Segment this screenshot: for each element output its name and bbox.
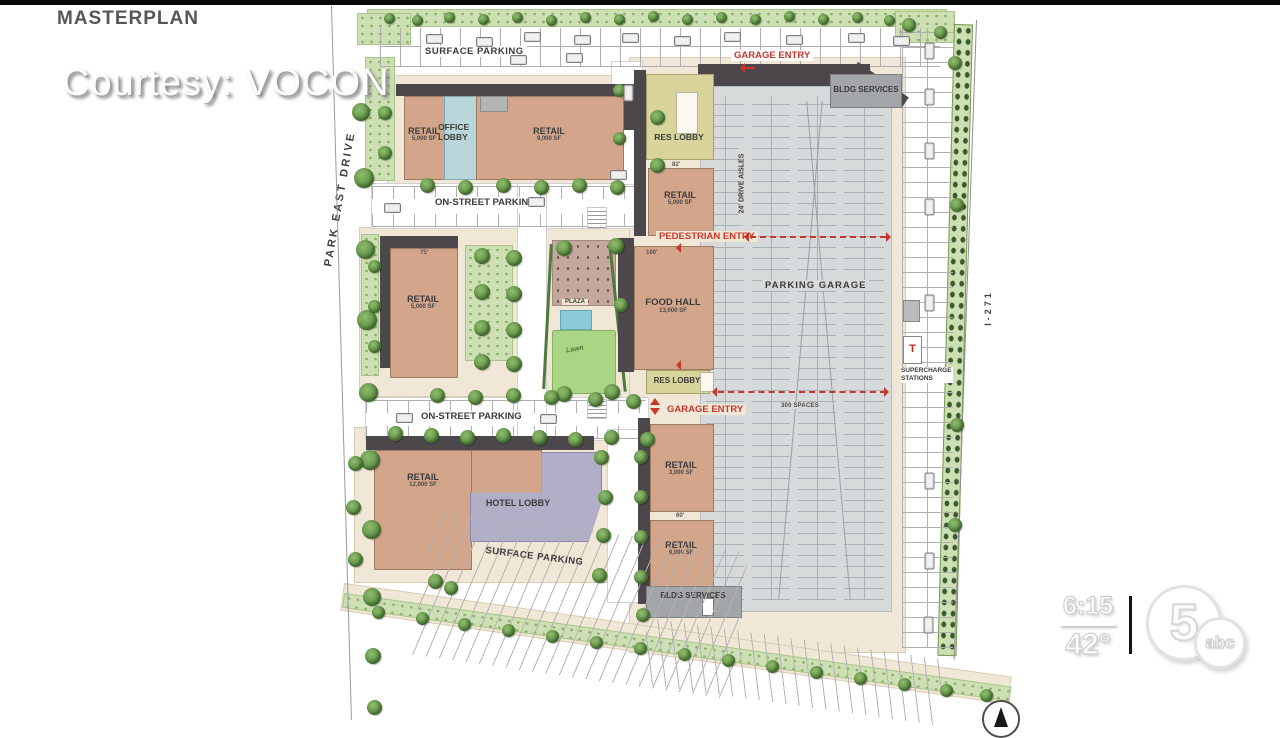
retail-s1-label: RETAIL 3,000 SF [659, 460, 703, 477]
garage-mid-arrow-icon [712, 387, 717, 397]
courtesy-watermark: Courtesy: VOCON [62, 62, 390, 105]
tree-icon [428, 574, 443, 589]
tree-icon [604, 384, 620, 400]
tree-icon [580, 12, 591, 23]
tree-icon [634, 642, 647, 655]
tree-icon [546, 15, 557, 26]
tree-icon [568, 432, 583, 447]
bldg-services-ne-label: BLDG SERVICES [828, 85, 904, 94]
tree-icon [412, 15, 423, 26]
car-icon [925, 199, 935, 216]
tree-icon [588, 392, 603, 407]
garage-entry-mid-arrow-icon [650, 408, 660, 415]
car-icon [925, 473, 935, 490]
tree-icon [420, 178, 435, 193]
tree-icon [626, 394, 641, 409]
tree-icon [506, 286, 522, 302]
tree-icon [474, 284, 490, 300]
network-name: abc [1205, 633, 1234, 653]
car-icon [925, 295, 935, 312]
retail-sw-label: RETAIL 12,000 SF [398, 472, 448, 489]
time-display: 6:15 [1050, 592, 1126, 621]
tree-icon [424, 428, 439, 443]
tree-icon [362, 520, 381, 539]
tree-icon [604, 430, 619, 445]
tree-icon [357, 310, 377, 330]
tree-icon [634, 450, 648, 464]
car-icon [925, 143, 935, 160]
car-icon [624, 85, 634, 102]
tree-icon [934, 26, 947, 39]
car-icon [540, 414, 557, 424]
tree-icon [940, 684, 953, 697]
tree-icon [506, 250, 522, 266]
tree-icon [722, 654, 735, 667]
tree-icon [506, 356, 522, 372]
car-icon [925, 89, 935, 106]
tree-icon [512, 12, 523, 23]
on-street-parking-upper-label: ON-STREET PARKING [432, 197, 539, 208]
office-lobby-label: OFFICE LOBBY [438, 122, 482, 142]
block-a-roof [396, 84, 640, 96]
tree-icon [458, 618, 471, 631]
car-icon [925, 43, 935, 60]
street-edge-west [331, 6, 352, 720]
tree-icon [388, 426, 403, 441]
entry-arrow-icon [676, 243, 681, 253]
pedestrian-arrow-icon [886, 232, 891, 242]
tree-icon [496, 428, 511, 443]
tree-icon [810, 666, 823, 679]
tree-icon [502, 624, 515, 637]
tree-icon [634, 490, 648, 504]
tree-icon [766, 660, 779, 673]
car-icon [848, 33, 865, 43]
tree-icon [854, 672, 867, 685]
tree-icon [444, 12, 455, 23]
car-icon [524, 32, 541, 42]
utility-box [903, 300, 920, 322]
tree-icon [592, 568, 607, 583]
tree-icon [478, 14, 489, 25]
tree-icon [556, 240, 572, 256]
tree-icon [506, 322, 522, 338]
bug-separator [1129, 596, 1132, 654]
drive-aisles-label: 24' DRIVE AISLES [739, 142, 746, 226]
tree-icon [384, 13, 395, 24]
tree-icon [610, 180, 625, 195]
tree-icon [368, 300, 381, 313]
tree-icon [608, 238, 624, 254]
tree-icon [346, 500, 361, 515]
car-icon [566, 53, 583, 63]
tree-icon [818, 14, 829, 25]
dim-food-hall: 100' [646, 250, 657, 256]
tree-icon [368, 340, 381, 353]
block-b-roof-left [380, 236, 390, 368]
tree-icon [474, 320, 490, 336]
tree-icon [596, 528, 611, 543]
tree-icon [648, 11, 659, 22]
tree-icon [613, 132, 626, 145]
tree-icon [614, 298, 628, 312]
tree-icon [546, 630, 559, 643]
tree-icon [948, 56, 962, 70]
tree-icon [948, 518, 962, 532]
spaces-label: 300 SPACES [778, 403, 822, 409]
temperature-display: 42° [1050, 628, 1126, 662]
tree-icon [716, 12, 727, 23]
tree-icon [898, 678, 911, 691]
supercharge-label: SUPERCHARGE STATIONS [901, 367, 953, 383]
plaza-label: PLAZA [562, 299, 588, 305]
pedestrian-arrow-icon [744, 232, 749, 242]
tree-icon [352, 103, 370, 121]
food-hall-label: FOOD HALL 13,000 SF [644, 298, 702, 315]
tree-icon [474, 354, 490, 370]
divider-line [1060, 623, 1116, 626]
garage-entry-top-arrow-tail [745, 67, 755, 69]
tree-icon [372, 606, 385, 619]
tree-icon [378, 146, 392, 160]
garage-entry-top-label: GARAGE ENTRY [731, 50, 813, 61]
parking-garage-label: PARKING GARAGE [762, 280, 869, 291]
tree-icon [980, 689, 993, 702]
car-icon [384, 203, 401, 213]
car-icon [724, 32, 741, 42]
tree-icon [356, 240, 375, 259]
tree-icon [367, 700, 382, 715]
tree-icon [363, 588, 381, 606]
block-a-core [480, 96, 508, 112]
tree-icon [534, 180, 549, 195]
car-icon [924, 617, 934, 634]
green-paseo [466, 246, 512, 360]
retail-e-label: RETAIL 5,000 SF [658, 190, 702, 207]
block-b-roof-top [380, 236, 458, 248]
tree-icon [474, 248, 490, 264]
garage-entry-mid-label: GARAGE ENTRY [664, 404, 746, 415]
pedestrian-entry-label: PEDESTRIAN ENTRY [656, 231, 758, 242]
car-icon [426, 34, 443, 44]
tree-icon [430, 388, 445, 403]
tree-icon [598, 490, 613, 505]
tesla-supercharger-icon: T [903, 336, 922, 364]
east-column-roof [634, 70, 646, 236]
tree-icon [634, 570, 648, 584]
tree-icon [884, 15, 895, 26]
tree-icon [572, 178, 587, 193]
tree-icon [458, 180, 473, 195]
tree-icon [444, 581, 458, 595]
hotel-lobby-label: HOTEL LOBBY [478, 498, 558, 508]
plaza-lawn [552, 330, 616, 394]
car-icon [674, 36, 691, 46]
tree-icon [378, 106, 392, 120]
tree-icon [348, 456, 363, 471]
car-icon [396, 413, 413, 423]
crosswalk [588, 208, 606, 228]
car-icon [574, 35, 591, 45]
dim-retail-w: 75' [420, 250, 428, 256]
car-icon [786, 35, 803, 45]
tree-icon [614, 14, 625, 25]
i271-label: I-271 [983, 278, 993, 338]
tree-icon [590, 636, 603, 649]
retail-w-label: RETAIL 5,000 SF [401, 294, 445, 311]
car-icon [476, 37, 493, 47]
tree-icon [650, 158, 665, 173]
tree-icon [678, 648, 691, 661]
car-icon [610, 170, 627, 180]
pedestrian-entry-path [750, 236, 886, 238]
north-compass-icon [982, 700, 1020, 738]
tree-icon [496, 178, 511, 193]
park-east-drive-label: PARK EAST DRIVE [319, 114, 360, 284]
top-letterbox-bar [0, 0, 1280, 5]
retail-ne-label: RETAIL 9,000 SF [527, 126, 571, 143]
tree-icon [594, 450, 609, 465]
garage-stall-column [798, 96, 836, 600]
garage-entry-mid-arrow-icon [650, 398, 660, 405]
on-street-parking-lower-label: ON-STREET PARKING [418, 411, 525, 422]
page-title: MASTERPLAN [57, 8, 199, 30]
tree-icon [348, 552, 363, 567]
car-icon [893, 36, 910, 46]
abc-network-logo: abc [1194, 617, 1246, 669]
tree-icon [360, 450, 380, 470]
car-icon [528, 197, 545, 207]
tree-icon [650, 110, 665, 125]
car-icon [622, 33, 639, 43]
tree-icon [634, 530, 648, 544]
tree-icon [354, 168, 374, 188]
tree-icon [950, 198, 964, 212]
time-temp-bug: 6:15 42° [1050, 592, 1126, 662]
tree-icon [468, 390, 483, 405]
tree-icon [416, 612, 429, 625]
garage-entry-mid-path [718, 391, 886, 393]
res-lobby-core [676, 92, 698, 134]
tree-icon [852, 12, 863, 23]
dim-retail-s-gap: 60' [676, 513, 684, 519]
entry-arrow-icon [676, 360, 681, 370]
garage-mid-arrow-icon [884, 387, 889, 397]
tree-icon [368, 260, 381, 273]
tree-icon [532, 430, 547, 445]
tree-icon [544, 390, 559, 405]
tree-icon [950, 418, 964, 432]
car-icon [925, 553, 935, 570]
car-icon [510, 55, 527, 65]
tree-icon [365, 648, 381, 664]
garage-stall-column [844, 96, 884, 600]
tree-icon [902, 18, 916, 32]
tree-icon [640, 432, 655, 447]
tree-icon [682, 14, 693, 25]
res-lobby-mid-label: RES LOBBY [648, 376, 706, 385]
building-retail-w [390, 248, 458, 378]
plaza-pool [560, 310, 592, 330]
tree-icon [460, 430, 475, 445]
tree-icon [784, 11, 795, 22]
tree-icon [636, 608, 650, 622]
res-lobby-top-label: RES LOBBY [648, 132, 710, 142]
tree-icon [506, 388, 521, 403]
tree-icon [359, 383, 378, 402]
tree-icon [750, 14, 761, 25]
